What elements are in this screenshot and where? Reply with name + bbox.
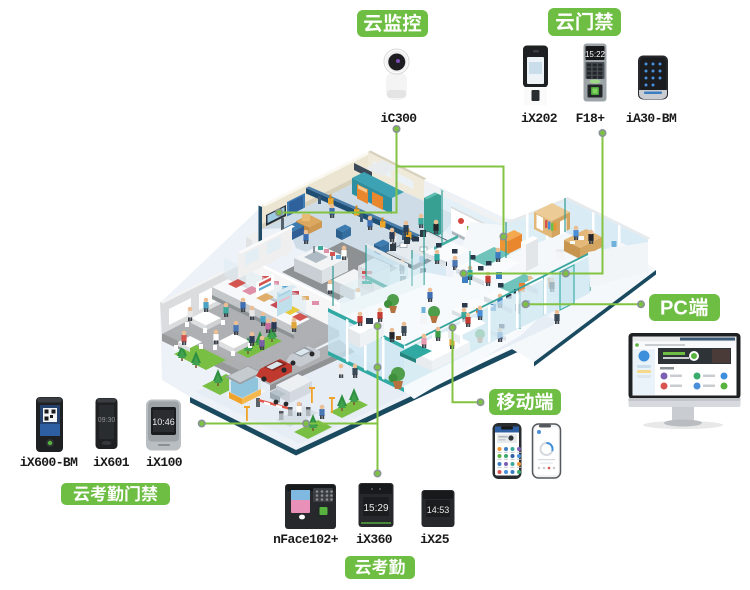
svg-text:iA30-BM: iA30-BM [626, 111, 677, 126]
svg-text:iX360: iX360 [356, 532, 393, 547]
svg-text:09:30: 09:30 [98, 417, 116, 424]
svg-text:10:46: 10:46 [152, 417, 175, 427]
svg-text:14:53: 14:53 [427, 505, 450, 515]
svg-text:iX600-BM: iX600-BM [20, 455, 78, 470]
svg-text:iX202: iX202 [521, 111, 558, 126]
svg-text:iX100: iX100 [146, 455, 183, 470]
svg-text:F18+: F18+ [576, 111, 606, 126]
svg-text:iC300: iC300 [380, 111, 417, 126]
svg-text:15:29: 15:29 [363, 503, 388, 514]
svg-text:iX25: iX25 [420, 532, 450, 547]
svg-text:nFace102+: nFace102+ [273, 532, 339, 547]
svg-text:iX601: iX601 [93, 455, 130, 470]
svg-text:PC: PC [660, 298, 688, 320]
svg-text:15:22: 15:22 [585, 50, 606, 59]
